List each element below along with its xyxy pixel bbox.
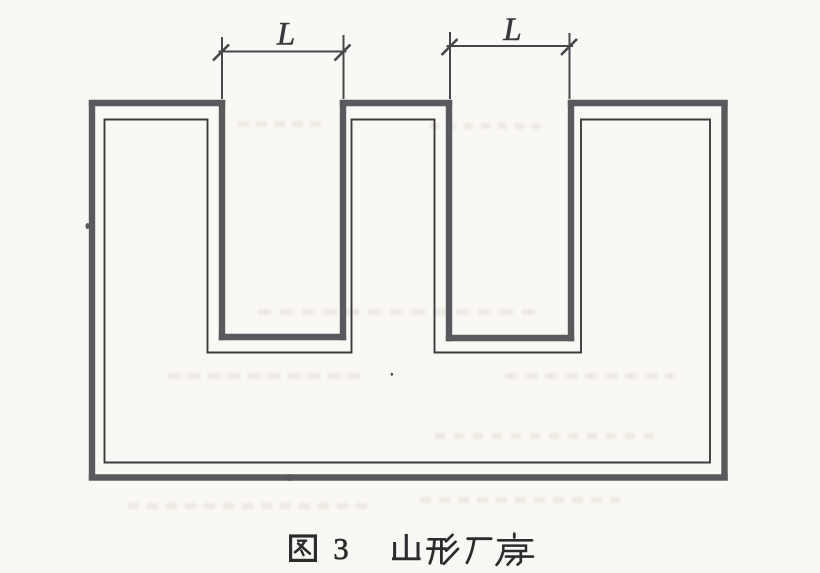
svg-text:L: L — [502, 12, 521, 48]
svg-text:L: L — [276, 17, 295, 53]
svg-text:3: 3 — [333, 532, 348, 566]
